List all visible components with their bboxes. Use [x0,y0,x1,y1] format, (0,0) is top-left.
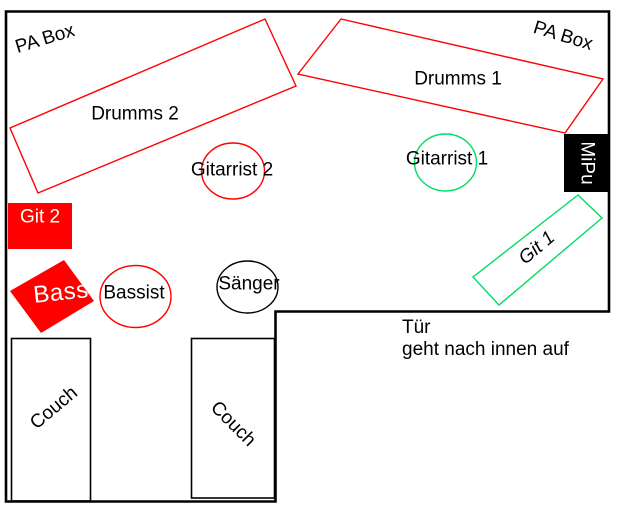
guitarist-1-label: Gitarrist 1 [406,150,488,169]
drums-2-label: Drumms 2 [91,105,179,124]
singer-label: Sänger [218,275,279,294]
door-note-line1: Tür [402,317,569,339]
floor-plan: PA Box PA Box Drumms 2 Drumms 1 Gitarris… [0,0,620,513]
bassist-label: Bassist [103,284,164,303]
drums-1-label: Drumms 1 [414,70,502,89]
git-2-label: Git 2 [20,208,60,227]
door-note: Tür geht nach innen auf [402,317,569,361]
mipu-label: MiPu [578,141,597,184]
guitarist-2-label: Gitarrist 2 [191,161,273,180]
bass-label: Bass [32,278,90,308]
door-note-line2: geht nach innen auf [402,339,569,361]
